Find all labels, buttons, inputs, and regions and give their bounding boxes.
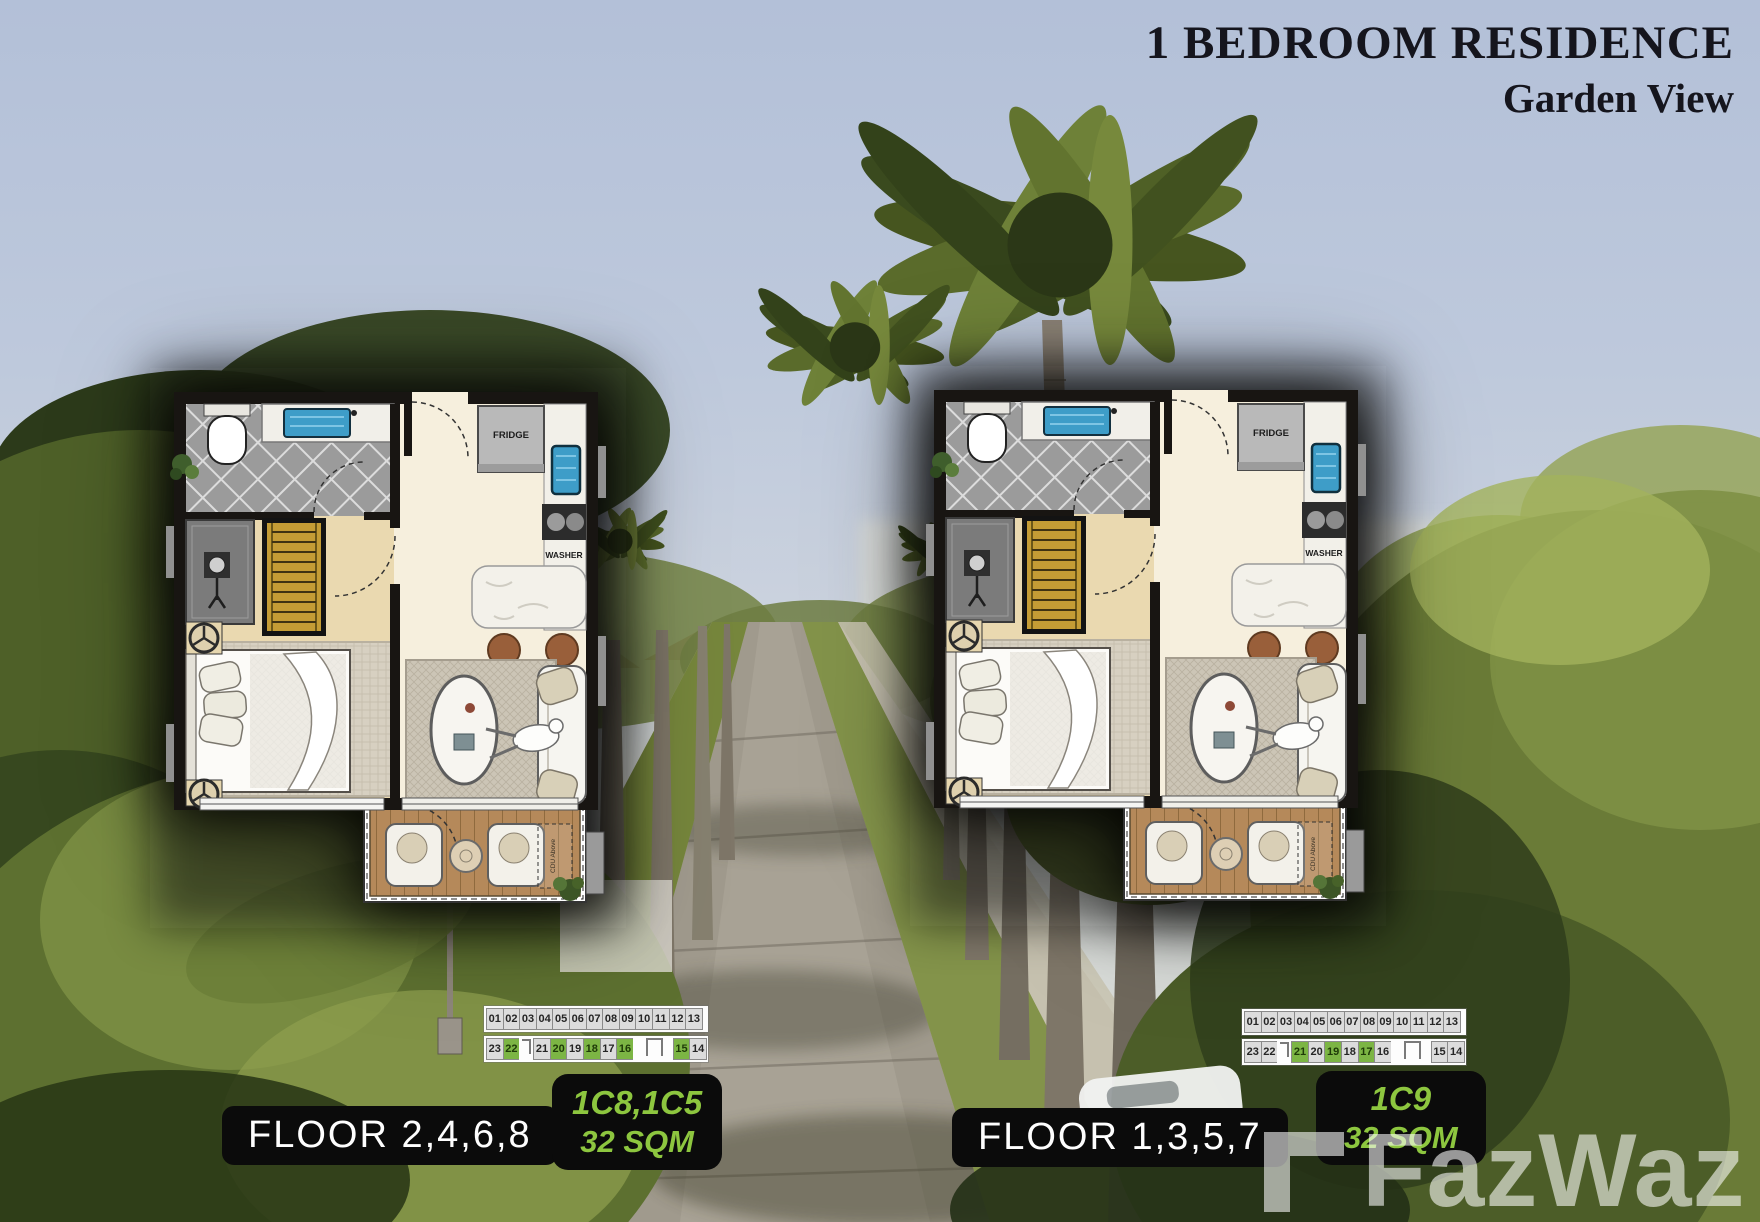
- unit-body: FRIDGE WASHER: [166, 392, 606, 810]
- kitchen-sink: [1312, 444, 1340, 492]
- balcony-armchair: [488, 824, 544, 886]
- unit-cell: 16: [1374, 1041, 1392, 1063]
- unit-cell: 15: [1431, 1041, 1449, 1063]
- floor-label: FLOOR 2,4,6,8: [222, 1106, 558, 1165]
- balcony-table: [1210, 838, 1242, 870]
- unit-cell: 07: [586, 1008, 604, 1030]
- bathroom: [186, 404, 394, 516]
- bathroom: [946, 402, 1154, 514]
- unit-body: FRIDGE WASHER: [926, 390, 1366, 808]
- island-counter: [1232, 564, 1346, 626]
- unit-cell: 12: [1427, 1011, 1445, 1033]
- unit-cell: 14: [689, 1038, 707, 1060]
- unit-code: 1C8,1C5: [572, 1083, 702, 1123]
- unit-stack-grid: 0102030405060708091011121323222120191817…: [484, 1006, 708, 1062]
- toilet: [208, 416, 246, 464]
- unit-cell: 03: [1277, 1011, 1295, 1033]
- unit-cell: 21: [1291, 1041, 1309, 1063]
- wardrobe: [1022, 516, 1086, 634]
- unit-cell: 18: [1341, 1041, 1359, 1063]
- unit-cell: 04: [536, 1008, 554, 1030]
- washer-label: WASHER: [1305, 548, 1342, 558]
- fridge-label: FRIDGE: [1253, 428, 1289, 439]
- unit-cell: 12: [669, 1008, 687, 1030]
- toilet-tank: [204, 404, 250, 416]
- unit-cell: 07: [1344, 1011, 1362, 1033]
- unit-cell: 05: [1310, 1011, 1328, 1033]
- wardrobe: [262, 518, 326, 636]
- unit-cell: 13: [1443, 1011, 1461, 1033]
- ac-ledge: [1346, 830, 1364, 892]
- unit-cell: 08: [1360, 1011, 1378, 1033]
- bathroom-sink: [284, 409, 350, 437]
- living-room: [1166, 658, 1346, 806]
- balcony: CDU Above: [364, 798, 604, 902]
- unit-cell: 23: [486, 1038, 504, 1060]
- page-subtitle: Garden View: [1146, 74, 1734, 122]
- core-notch: [519, 1038, 533, 1060]
- toilet: [968, 414, 1006, 462]
- floor-plan-unit-1c8-1c5: CDU Above: [166, 386, 606, 908]
- unit-cell: 19: [566, 1038, 584, 1060]
- unit-cell: 20: [550, 1038, 568, 1060]
- unit-cell: 15: [673, 1038, 691, 1060]
- unit-cell: 11: [1410, 1011, 1428, 1033]
- unit-cell: 16: [616, 1038, 634, 1060]
- core-bracket: [1391, 1041, 1431, 1063]
- unit-label: 1C8,1C5 32 SQM: [552, 1074, 722, 1170]
- cdu-note: CDU Above: [550, 839, 557, 873]
- unit-cell: 18: [583, 1038, 601, 1060]
- bathroom-sink: [1044, 407, 1110, 435]
- page-header: 1 BEDROOM RESIDENCE Garden View: [1146, 16, 1734, 122]
- kitchen-sink: [552, 446, 580, 494]
- fazwaz-watermark: FazWaz: [1260, 1112, 1746, 1222]
- unit-cell: 02: [503, 1008, 521, 1030]
- unit-cell: 09: [1377, 1011, 1395, 1033]
- fridge-label: FRIDGE: [493, 430, 529, 441]
- nightstand: [190, 624, 218, 652]
- floor-plan-drawing: CDU Above: [166, 386, 606, 908]
- unit-cell: 11: [652, 1008, 670, 1030]
- shower: [946, 518, 1014, 622]
- unit-cell: 08: [602, 1008, 620, 1030]
- ac-ledge: [586, 832, 604, 894]
- watermark-text: FazWaz: [1362, 1112, 1746, 1222]
- core-bracket: [633, 1038, 673, 1060]
- unit-cell: 05: [552, 1008, 570, 1030]
- unit-cell: 01: [486, 1008, 504, 1030]
- unit-cell: 17: [600, 1038, 618, 1060]
- cdu-note: CDU Above: [1310, 837, 1317, 871]
- unit-cell: 09: [619, 1008, 637, 1030]
- fazwaz-logo-icon: [1260, 1128, 1348, 1216]
- balcony-armchair: [1146, 822, 1202, 884]
- balcony-table: [450, 840, 482, 872]
- unit-cell: 19: [1324, 1041, 1342, 1063]
- unit-cell: 02: [1261, 1011, 1279, 1033]
- unit-area: 32 SQM: [572, 1123, 702, 1161]
- unit-cell: 20: [1308, 1041, 1326, 1063]
- bedroom: [186, 622, 392, 808]
- unit-cell: 06: [569, 1008, 587, 1030]
- washer-label: WASHER: [545, 550, 582, 560]
- brochure-page: 1 BEDROOM RESIDENCE Garden View: [0, 0, 1760, 1222]
- page-title: 1 BEDROOM RESIDENCE: [1146, 16, 1734, 70]
- balcony-armchair: [386, 824, 442, 886]
- balcony: CDU Above: [1124, 796, 1364, 900]
- living-room: [406, 660, 586, 808]
- unit-cell: 14: [1447, 1041, 1465, 1063]
- toilet-tank: [964, 402, 1010, 414]
- unit-cell: 17: [1358, 1041, 1376, 1063]
- balcony-armchair: [1248, 822, 1304, 884]
- unit-cell: 04: [1294, 1011, 1312, 1033]
- unit-cell: 10: [635, 1008, 653, 1030]
- unit-cell: 22: [503, 1038, 521, 1060]
- unit-cell: 13: [685, 1008, 703, 1030]
- nightstand: [950, 622, 978, 650]
- shower: [186, 520, 254, 624]
- unit-cell: 23: [1244, 1041, 1262, 1063]
- unit-stack-grid: 0102030405060708091011121323222120191817…: [1242, 1009, 1466, 1065]
- unit-cell: 06: [1327, 1011, 1345, 1033]
- island-counter: [472, 566, 586, 628]
- bedroom: [946, 620, 1152, 806]
- unit-cell: 10: [1393, 1011, 1411, 1033]
- unit-cell: 03: [519, 1008, 537, 1030]
- core-notch: [1277, 1041, 1291, 1063]
- floor-label: FLOOR 1,3,5,7: [952, 1108, 1288, 1167]
- unit-cell: 22: [1261, 1041, 1279, 1063]
- unit-cell: 01: [1244, 1011, 1262, 1033]
- floor-plan-drawing: CDU Above: [926, 384, 1366, 906]
- unit-cell: 21: [533, 1038, 551, 1060]
- floor-plan-unit-1c9: CDU Above: [926, 384, 1366, 906]
